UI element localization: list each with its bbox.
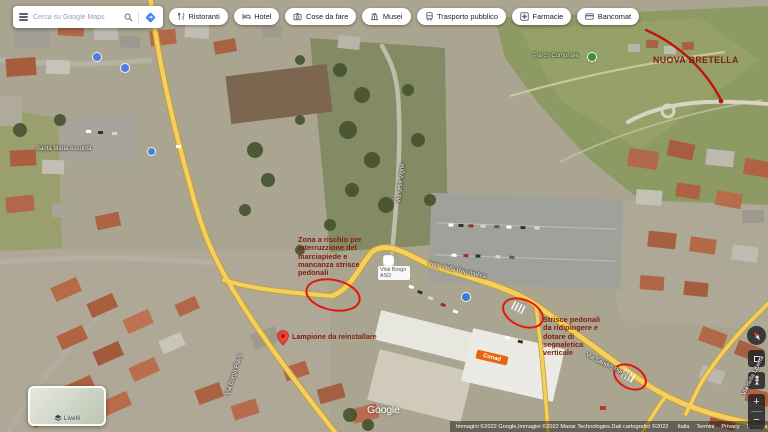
zoom-in-button[interactable]: +: [748, 394, 765, 411]
google-maps-window: Via Borgo Piave Via delle Vigne Viale de…: [0, 0, 768, 432]
pill-bancomat[interactable]: Bancomat: [577, 8, 639, 25]
pharmacy-icon: [520, 12, 529, 21]
category-pills: Ristoranti Hotel Cose da fare: [169, 8, 639, 25]
poi-label-park[interactable]: Parco Comunale: [534, 53, 579, 59]
annotation-zone-risk: Zona a rischio per interruzzione del mar…: [298, 236, 370, 277]
pill-label: Cose da fare: [306, 12, 348, 21]
hotel-icon: [242, 12, 251, 21]
directions-icon[interactable]: [144, 11, 157, 24]
search-input[interactable]: Cerca su Google Maps: [33, 14, 119, 21]
pill-cose-da-fare[interactable]: Cose da fare: [285, 8, 356, 25]
layers-label: Livelli: [64, 415, 80, 422]
pill-label: Trasporto pubblico: [437, 12, 498, 21]
museum-icon: [370, 12, 379, 21]
top-bar: Cerca su Google Maps Ristoranti: [13, 6, 639, 28]
google-watermark: Google: [367, 404, 400, 416]
business-poi-icon[interactable]: [462, 293, 470, 301]
pill-label: Musei: [383, 12, 403, 21]
zoom-control: + −: [748, 394, 765, 429]
annotation-crosswalks: Strisce pedonali da ridipingere e dotare…: [543, 316, 603, 357]
poi-card-club[interactable]: Vital Borgo ASD: [378, 266, 410, 280]
layers-control[interactable]: Livelli: [28, 386, 106, 426]
compass-needle-icon: [751, 330, 763, 342]
pill-trasporto-pubblico[interactable]: Trasporto pubblico: [417, 8, 506, 25]
transit-icon: [425, 12, 434, 21]
attribution-credits: Immagini ©2022 Google,Immagini ©2022 Max…: [456, 424, 669, 430]
zoom-out-button[interactable]: −: [748, 412, 765, 429]
attribution-link-terms[interactable]: Termini: [696, 424, 714, 430]
transit-stop-icon[interactable]: [121, 64, 129, 72]
transit-stop-icon[interactable]: [93, 53, 101, 61]
poi-label-church[interactable]: Santa Maria Assunta: [36, 146, 91, 152]
pill-label: Farmacie: [532, 12, 563, 21]
pill-farmacie[interactable]: Farmacie: [512, 8, 571, 25]
annotation-lamp: Lampione da reinstallare: [292, 333, 377, 341]
restaurant-icon: [177, 12, 185, 21]
attribution-link-country[interactable]: Italia: [678, 424, 690, 430]
park-poi-icon[interactable]: [588, 53, 596, 61]
pill-label: Hotel: [254, 12, 271, 21]
search-icon[interactable]: [124, 13, 133, 22]
pill-hotel[interactable]: Hotel: [234, 8, 280, 25]
pill-label: Bancomat: [598, 12, 631, 21]
attribution-link-privacy[interactable]: Privacy: [721, 424, 739, 430]
pill-ristoranti[interactable]: Ristoranti: [169, 8, 228, 25]
pill-label: Ristoranti: [189, 12, 220, 21]
layers-icon: [54, 414, 62, 422]
transit-stop-icon[interactable]: [148, 148, 155, 155]
attractions-icon: [293, 12, 302, 21]
menu-icon[interactable]: [19, 13, 28, 20]
compass-control[interactable]: [747, 326, 766, 345]
atm-icon: [585, 12, 594, 21]
attribution-bar: Immagini ©2022 Google,Immagini ©2022 Max…: [450, 421, 768, 432]
pill-musei[interactable]: Musei: [362, 8, 410, 25]
search-box[interactable]: Cerca su Google Maps: [13, 6, 163, 28]
club-poi-icon[interactable]: [384, 256, 393, 265]
divider: [138, 11, 139, 24]
annotation-new-road: NUOVA BRETELLA: [653, 56, 739, 66]
